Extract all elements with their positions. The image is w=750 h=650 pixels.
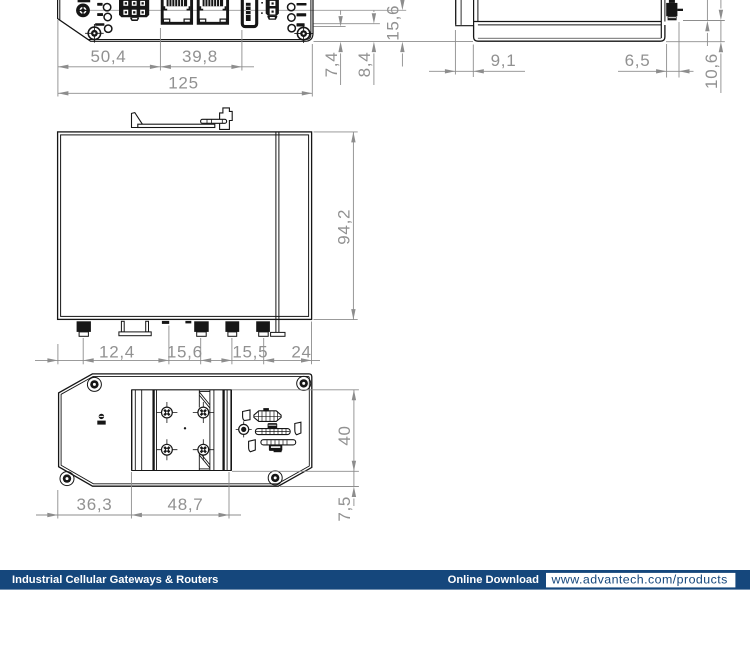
svg-text:15,6: 15,6 bbox=[167, 342, 203, 361]
svg-text:24: 24 bbox=[291, 342, 311, 361]
svg-text:7,4: 7,4 bbox=[322, 52, 341, 78]
svg-text:15,5: 15,5 bbox=[232, 342, 268, 361]
svg-text:10,6: 10,6 bbox=[702, 53, 721, 89]
svg-text:39,8: 39,8 bbox=[182, 47, 218, 66]
svg-text:8,4: 8,4 bbox=[355, 52, 374, 78]
svg-text:Industrial Cellular Gateways &: Industrial Cellular Gateways & Routers bbox=[12, 574, 218, 586]
svg-text:6,5: 6,5 bbox=[625, 51, 651, 70]
svg-text:94,2: 94,2 bbox=[335, 209, 354, 245]
svg-text:9,1: 9,1 bbox=[491, 51, 517, 70]
svg-text:Online Download: Online Download bbox=[448, 574, 540, 586]
svg-text:36,3: 36,3 bbox=[77, 495, 113, 514]
svg-text:50,4: 50,4 bbox=[91, 47, 127, 66]
svg-text:12,4: 12,4 bbox=[99, 342, 135, 361]
svg-text:www.advantech.com/products: www.advantech.com/products bbox=[551, 573, 728, 587]
svg-text:7,5: 7,5 bbox=[335, 496, 354, 522]
svg-text:15,6: 15,6 bbox=[384, 5, 403, 41]
svg-text:48,7: 48,7 bbox=[168, 495, 204, 514]
svg-text:40: 40 bbox=[335, 425, 354, 445]
svg-text:125: 125 bbox=[168, 73, 198, 92]
